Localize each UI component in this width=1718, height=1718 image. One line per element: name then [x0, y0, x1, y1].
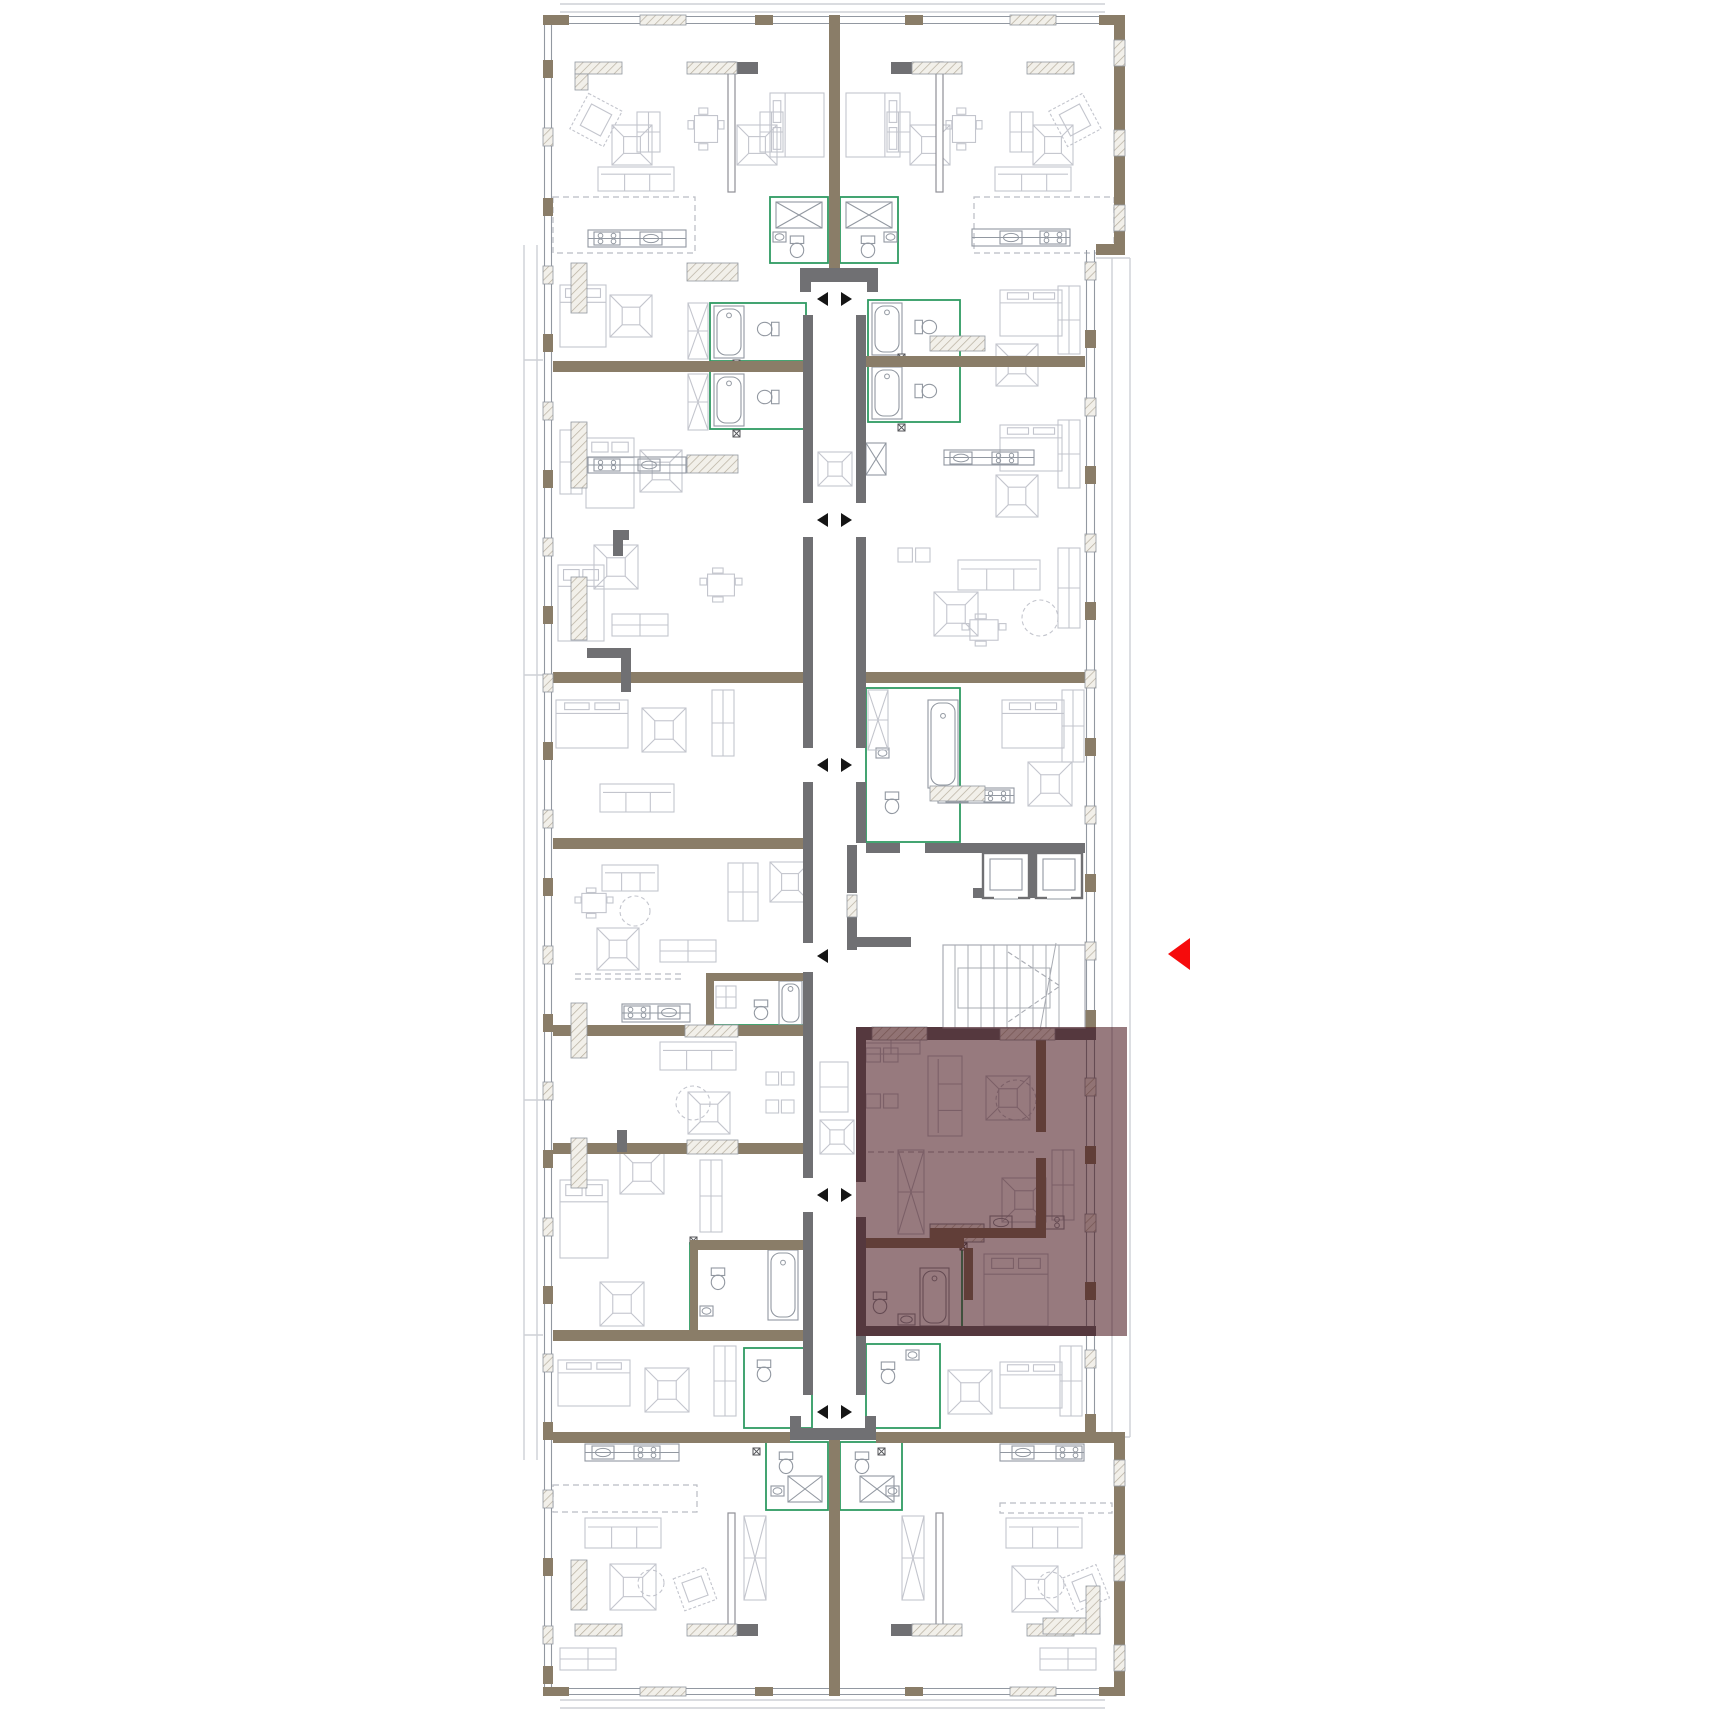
floor-plan-svg — [0, 0, 1718, 1718]
selected-unit-overlay[interactable] — [856, 1027, 1127, 1336]
staircase — [943, 943, 1085, 1030]
elevator-1 — [983, 853, 1029, 901]
selected-unit-highlight[interactable] — [856, 1027, 1127, 1336]
elevator-2 — [1036, 853, 1082, 901]
floor-plan-page — [0, 0, 1718, 1718]
